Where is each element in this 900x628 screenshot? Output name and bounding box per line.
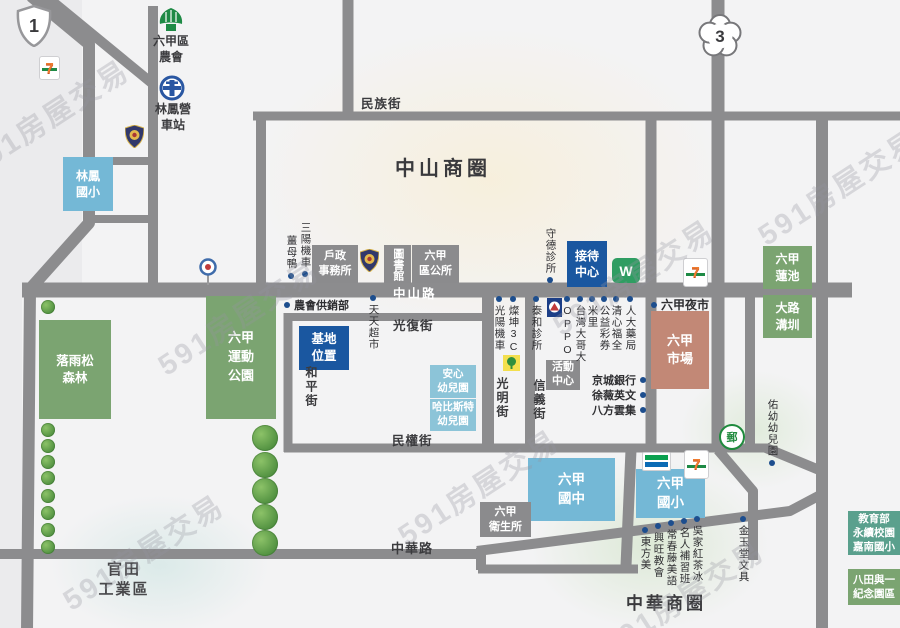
tree-icon <box>41 489 55 503</box>
seven-eleven-icon: 7 <box>683 258 708 287</box>
poi-bafang-dumpling: 八方雲集 <box>592 402 646 418</box>
poi-jiangmuya: 薑母鴨 <box>286 235 297 279</box>
household-registration-office-box: 戶政 事務所 <box>312 245 358 283</box>
poi-sanyang-motor: 三陽機車 <box>300 222 311 277</box>
poi-guangyang-motor: 光陽機車 <box>494 296 505 351</box>
poi-dot <box>284 302 290 308</box>
road-rail-diagonal <box>47 0 153 84</box>
road-provincial-1 <box>27 0 89 628</box>
heping-street-label: 和平街 <box>303 366 320 408</box>
district-office-box: 六甲 區公所 <box>412 245 459 283</box>
poi-dot <box>601 296 607 302</box>
tree-icon <box>41 540 55 554</box>
poi-dot <box>655 523 661 529</box>
poi-dot <box>668 520 674 526</box>
poi-xuwei-english: 徐薇英文 <box>592 387 646 403</box>
train-station-label: 林鳳營 車站 <box>142 102 204 133</box>
poi-dot <box>547 277 553 283</box>
poi-dot <box>613 296 619 302</box>
poi-xingwang-church: 興旺教會 <box>653 523 664 578</box>
poi-dot <box>740 516 746 522</box>
tree-icon <box>41 423 55 437</box>
health-center-box: 六甲 衛生所 <box>480 502 531 537</box>
poi-youyou-kindergarten: 佑幼幼兒園 <box>767 399 778 466</box>
poi-taiwan-mobile: 台灣大哥大 <box>575 296 586 363</box>
seven-eleven-glyph: 7 <box>691 264 699 281</box>
poi-tiantian-market: 天天超市 <box>368 295 379 350</box>
poi-mingren-cram-school: 名人補習班 <box>679 518 690 585</box>
tree-icon <box>252 478 278 504</box>
poi-dongfangmei: 東方美 <box>640 527 651 571</box>
tree-icon <box>41 300 55 314</box>
poi-dot <box>640 392 646 398</box>
post-office-glyph: 郵 <box>727 429 738 445</box>
poi-dot <box>589 296 595 302</box>
tree-icon <box>41 523 55 537</box>
poi-farmers-supply: 農會供銷部 <box>284 297 349 313</box>
route-1-number: 1 <box>29 16 39 36</box>
poi-chingshin-tea: 清心福全 <box>611 296 622 351</box>
minquan-street-label: 民權街 <box>392 430 433 449</box>
moe-campus-box: 教育部 永續校園 嘉南國小 <box>848 511 900 555</box>
poi-lottery: 公益彩券 <box>599 296 610 351</box>
police-badge-icon <box>360 249 379 272</box>
poi-shoude-clinic: 守德診所 <box>545 228 556 283</box>
minzu-street-label: 民族街 <box>361 93 402 112</box>
poi-kings-town-bank: 京城銀行 <box>592 372 646 388</box>
sport-park-box: 六甲 運動 公園 <box>206 296 276 419</box>
guangming-street-label: 光明街 <box>494 377 511 419</box>
tree-icon <box>41 455 55 469</box>
route-3-number: 3 <box>715 27 724 46</box>
tree-icon <box>41 439 55 453</box>
poi-night-market: 六甲夜市 <box>651 296 709 313</box>
anxin-kindergarten-box: 安心 幼兒園 <box>430 365 476 398</box>
poi-dot <box>510 296 516 302</box>
watsons-icon: W <box>612 258 640 283</box>
park-tree-icon <box>503 355 520 371</box>
poi-jinyutang-stationery: 金玉堂文具 <box>738 516 749 583</box>
route-1-badge: 1 <box>16 5 52 47</box>
tree-icon <box>252 504 278 530</box>
map-canvas[interactable]: 1 3 7 六甲區 農會 林鳳營 車站 林鳳 國小 民族街 中山商圈 薑母鴨 三… <box>0 0 900 628</box>
liujia-market-box: 六甲 市場 <box>651 311 709 389</box>
seven-eleven-glyph: 7 <box>692 456 700 473</box>
junior-high-box: 六甲 國中 <box>528 458 615 521</box>
tree-icon <box>252 425 278 451</box>
poi-mili: 米里 <box>587 296 598 328</box>
tree-icon <box>41 471 55 485</box>
reception-center-box: 接待 中心 <box>567 241 607 287</box>
route-3-badge: 3 <box>697 13 743 59</box>
guangfu-street-label: 光復街 <box>393 315 434 334</box>
farmers-association-icon <box>157 7 185 33</box>
seven-eleven-icon: 7 <box>39 56 60 80</box>
poi-dot <box>496 296 502 302</box>
seven-eleven-glyph: 7 <box>45 60 53 77</box>
familymart-green-stripe <box>645 455 668 460</box>
lotus-pond-box: 六甲 蓮池 <box>763 246 812 289</box>
poi-dot <box>640 407 646 413</box>
poi-dot <box>533 296 539 302</box>
poi-tsannkuen-3c: 燦坤3C <box>508 296 519 354</box>
poi-dot <box>370 295 376 301</box>
linfeng-elementary-box: 林鳳 國小 <box>63 157 113 211</box>
poi-dot <box>681 518 687 524</box>
tree-icon <box>252 530 278 556</box>
road-school-vertical <box>626 450 631 566</box>
poi-dot <box>577 296 583 302</box>
guantian-industrial-label: 官田 工業區 <box>74 560 174 601</box>
poi-taihe-clinic: 泰和診所 <box>531 296 542 351</box>
activity-center-box: 活動 中心 <box>546 360 580 390</box>
ditch-park-box: 大路 溝圳 <box>763 295 812 338</box>
zhongshan-road-label: 中山路 <box>393 283 437 302</box>
poi-oppo: OPPO <box>562 296 573 357</box>
poi-dot <box>694 516 700 522</box>
poi-ivy-english: 常春藤美語 <box>666 520 677 587</box>
poi-dot <box>642 527 648 533</box>
farmers-association-label: 六甲區 農會 <box>140 34 202 65</box>
familymart-icon <box>642 452 671 471</box>
seven-eleven-icon: 7 <box>684 450 709 479</box>
library-box: 圖書館 <box>384 245 411 283</box>
police-badge-icon <box>125 125 144 148</box>
poi-dot <box>651 302 657 308</box>
poi-dot <box>288 273 294 279</box>
poi-dot <box>769 460 775 466</box>
train-station-icon <box>159 75 185 101</box>
zhonghua-district-label: 中華商圈 <box>626 589 706 614</box>
watsons-glyph: W <box>619 263 632 279</box>
habist-kindergarten-box: 哈比斯特 幼兒園 <box>430 399 476 431</box>
hatta-memorial-box: 八田與一 紀念園區 <box>848 569 900 605</box>
poi-dot <box>564 296 570 302</box>
familymart-blue-stripe <box>645 462 668 467</box>
post-office-icon: 郵 <box>719 424 745 450</box>
poi-renda-pharmacy: 人大藥局 <box>625 296 636 351</box>
zhonghua-road-label: 中華路 <box>391 538 433 557</box>
bank-logo-icon <box>547 298 562 317</box>
poi-dot <box>302 271 308 277</box>
site-location-box: 基地 位置 <box>299 326 349 370</box>
zhongshan-district-label: 中山商圈 <box>395 152 491 181</box>
poi-dot <box>627 296 633 302</box>
poi-dot <box>640 377 646 383</box>
xinyi-street-label: 信義街 <box>531 379 548 421</box>
tree-icon <box>41 506 55 520</box>
tree-icon <box>252 452 278 478</box>
bus-station-icon <box>198 258 218 285</box>
poi-wujia-tea: 吳家紅茶冰 <box>692 516 703 583</box>
rain-forest-box: 落雨松 森林 <box>39 320 111 419</box>
